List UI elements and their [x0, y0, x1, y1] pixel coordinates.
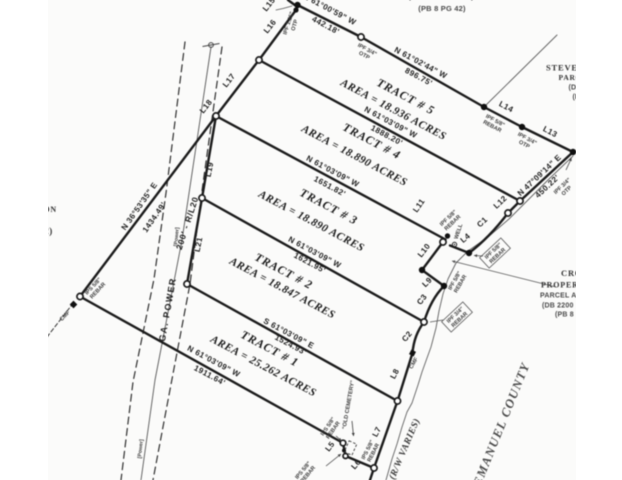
svg-text:(PB 8: (PB 8 [555, 312, 574, 319]
svg-text:(PB 8 PG 42): (PB 8 PG 42) [418, 4, 466, 13]
svg-text:(DB 1694 PG 301): (DB 1694 PG 301) [408, 0, 474, 1]
svg-text:(DB 2200: (DB 2200 [542, 303, 574, 310]
svg-text:PARCEL A: PARCEL A [540, 293, 576, 300]
svg-text:PROPER: PROPER [541, 281, 579, 290]
